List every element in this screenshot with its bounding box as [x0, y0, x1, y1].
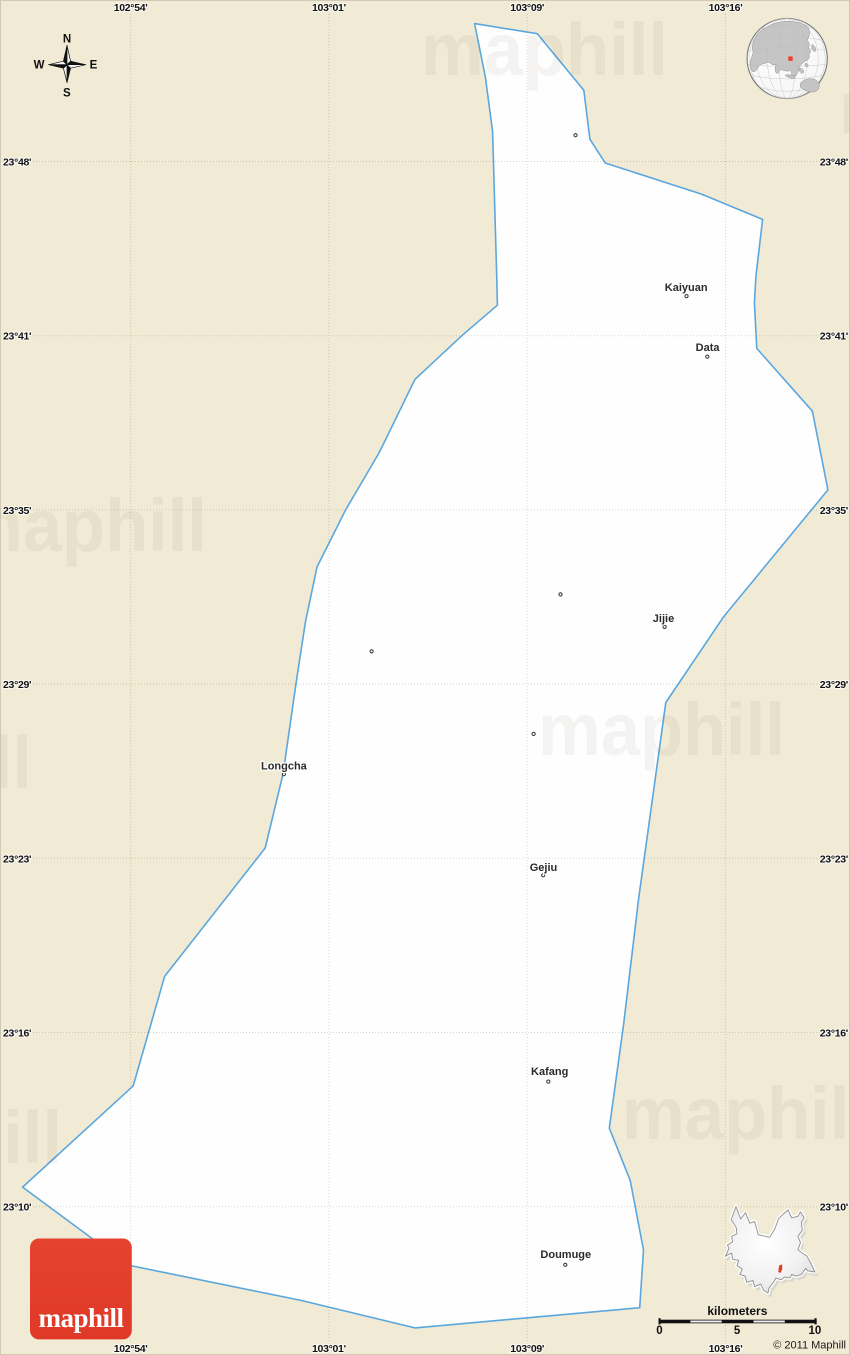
svg-text:maphill: maphill	[421, 8, 668, 91]
svg-text:23°23': 23°23'	[820, 853, 848, 865]
svg-text:Kaiyuan: Kaiyuan	[665, 282, 708, 294]
svg-text:23°29': 23°29'	[3, 679, 31, 691]
svg-text:23°35': 23°35'	[820, 505, 848, 517]
svg-text:103°09': 103°09'	[510, 2, 544, 14]
svg-text:maphill: maphill	[38, 1303, 124, 1333]
svg-text:23°29': 23°29'	[820, 679, 848, 691]
svg-text:102°54': 102°54'	[114, 2, 148, 14]
svg-text:23°48': 23°48'	[3, 157, 31, 169]
svg-text:N: N	[63, 34, 71, 46]
svg-text:Data: Data	[696, 342, 721, 354]
svg-text:Gejiu: Gejiu	[530, 862, 558, 874]
svg-text:5: 5	[734, 1325, 741, 1337]
svg-text:Kafang: Kafang	[531, 1066, 568, 1078]
svg-text:23°35': 23°35'	[3, 505, 31, 517]
svg-text:103°16': 103°16'	[709, 1343, 743, 1355]
svg-text:23°10': 23°10'	[820, 1202, 848, 1214]
svg-text:102°54': 102°54'	[114, 1343, 148, 1355]
svg-text:103°01': 103°01'	[312, 2, 346, 14]
svg-text:23°23': 23°23'	[3, 853, 31, 865]
svg-text:23°16': 23°16'	[3, 1028, 31, 1040]
svg-text:E: E	[90, 60, 98, 72]
svg-text:23°16': 23°16'	[820, 1028, 848, 1040]
svg-text:kilometers: kilometers	[707, 1304, 767, 1318]
svg-text:maphill: maphill	[0, 1096, 62, 1179]
svg-text:10: 10	[809, 1325, 822, 1337]
svg-text:maphill: maphill	[0, 484, 207, 567]
svg-text:maphill: maphill	[622, 1072, 850, 1155]
svg-text:W: W	[34, 60, 45, 72]
svg-text:23°48': 23°48'	[820, 157, 848, 169]
svg-text:23°10': 23°10'	[3, 1202, 31, 1214]
svg-text:maphill: maphill	[538, 688, 785, 771]
svg-text:103°16': 103°16'	[709, 2, 743, 14]
svg-text:S: S	[63, 88, 71, 100]
svg-text:0: 0	[656, 1325, 662, 1337]
svg-text:© 2011 Maphill: © 2011 Maphill	[773, 1340, 846, 1352]
svg-text:103°09': 103°09'	[510, 1343, 544, 1355]
svg-text:Doumuge: Doumuge	[540, 1249, 591, 1261]
svg-text:Longcha: Longcha	[261, 760, 308, 772]
svg-text:23°41': 23°41'	[820, 331, 848, 343]
svg-text:Jijie: Jijie	[653, 613, 674, 625]
svg-text:23°41': 23°41'	[3, 331, 31, 343]
svg-text:maphill: maphill	[839, 66, 850, 149]
svg-text:maphill: maphill	[0, 721, 32, 804]
svg-text:103°01': 103°01'	[312, 1343, 346, 1355]
